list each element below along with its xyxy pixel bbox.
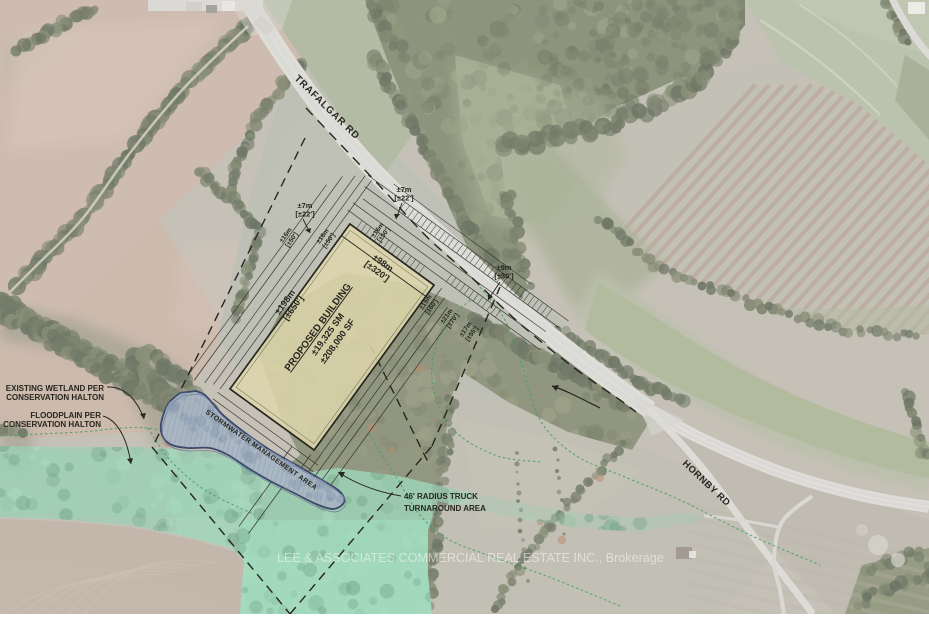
svg-text:FLOODPLAIN PER: FLOODPLAIN PER	[30, 411, 101, 420]
svg-text:46' RADIUS TRUCK: 46' RADIUS TRUCK	[404, 492, 478, 501]
svg-text:CONSERVATION HALTON: CONSERVATION HALTON	[3, 420, 101, 429]
svg-text:CONSERVATION HALTON: CONSERVATION HALTON	[6, 393, 104, 402]
svg-text:TURNAROUND AREA: TURNAROUND AREA	[404, 504, 486, 513]
svg-text:[±22']: [±22']	[394, 194, 414, 203]
svg-text:[±30']: [±30']	[494, 272, 514, 281]
svg-text:EXISTING WETLAND PER: EXISTING WETLAND PER	[6, 384, 104, 393]
svg-text:[±22']: [±22']	[295, 210, 315, 219]
svg-text:LEE & ASSOCIATES COMMERCIAL RE: LEE & ASSOCIATES COMMERCIAL REAL ESTATE …	[277, 551, 664, 565]
